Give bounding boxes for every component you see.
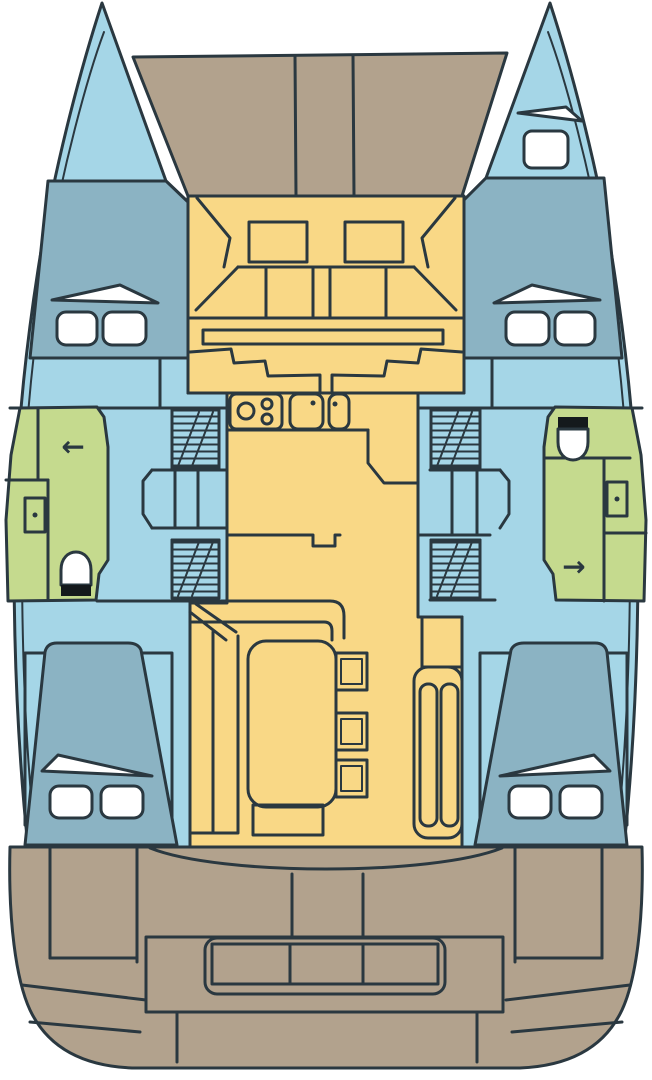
aft-deck: [10, 847, 643, 1068]
pillow: [57, 312, 97, 345]
pillow: [560, 786, 602, 818]
pillow: [103, 312, 146, 345]
toilet-base: [61, 585, 91, 596]
faucet-dot: [33, 513, 38, 518]
toilet-bowl: [61, 552, 91, 585]
foredeck-seam: [353, 55, 354, 196]
toilet-base: [558, 417, 588, 429]
faucet-dot: [311, 401, 316, 406]
shower-direction-arrow-left-icon: ←: [61, 430, 84, 463]
foredeck-seam: [295, 56, 296, 196]
foredeck: [133, 53, 507, 196]
toilet-bowl: [558, 429, 588, 460]
port-head-room: [6, 407, 108, 601]
port-head: ←: [6, 407, 108, 601]
shower-direction-arrow-right-icon: →: [562, 550, 585, 583]
bow-hatch: [524, 131, 568, 168]
port-forward-cabin: [30, 181, 188, 358]
foredeck-panel: [133, 53, 507, 196]
pillow: [50, 786, 92, 818]
floorplan-svg: ← →: [0, 0, 652, 1080]
pillow: [506, 312, 549, 345]
pillow: [555, 312, 595, 345]
pillow: [101, 786, 143, 818]
catamaran-floorplan: ← →: [0, 0, 652, 1080]
faucet-dot: [333, 402, 338, 407]
faucet-dot: [615, 497, 620, 502]
starboard-head: →: [544, 407, 646, 601]
plan-root: ← →: [6, 3, 646, 1068]
pillow: [509, 786, 551, 818]
